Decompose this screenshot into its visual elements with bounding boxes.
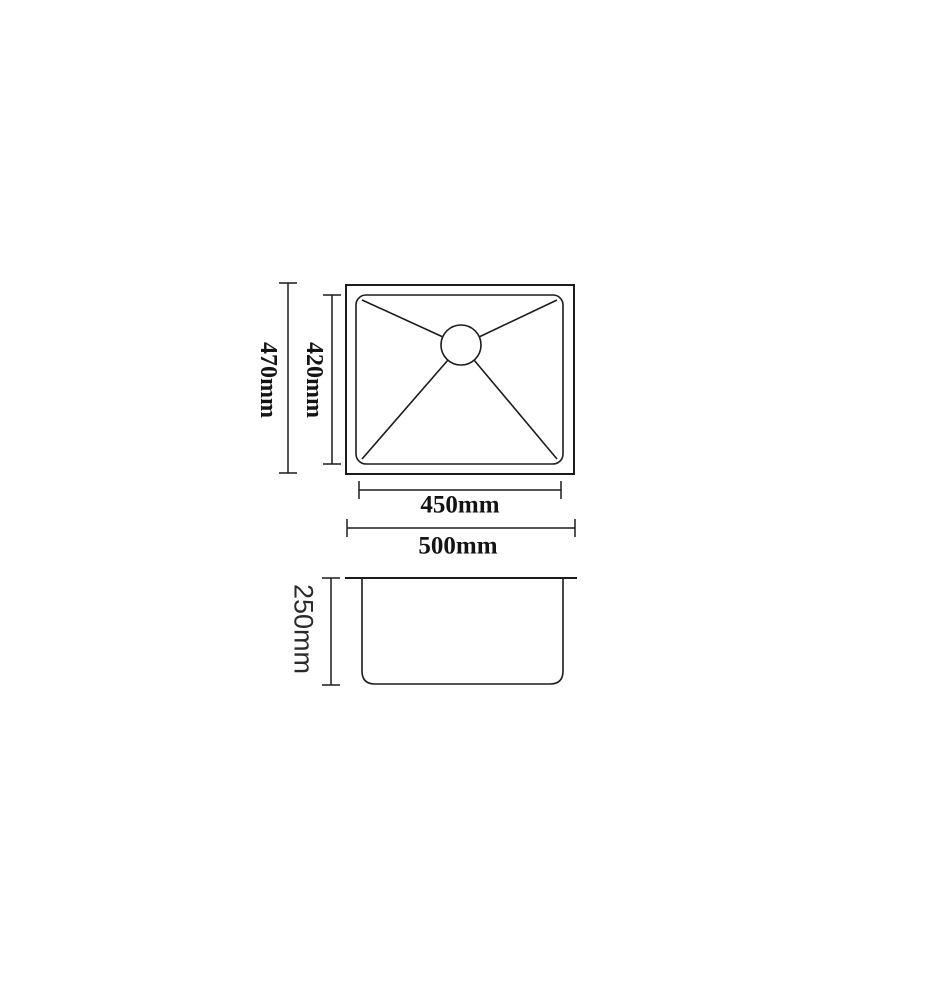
- sink-side-view: [345, 578, 577, 684]
- dim-label-inner-height: 420mm: [302, 342, 326, 418]
- drain-crease-top-right: [479, 300, 557, 337]
- drain-circle: [441, 325, 481, 365]
- dim-label-outer-height: 470mm: [256, 342, 280, 418]
- outer-rim-outline: [346, 285, 574, 474]
- dim-label-bowl-depth: 250mm: [290, 584, 317, 674]
- dim-line-outer-height: [279, 283, 297, 473]
- sink-dimension-diagram: 470mm 420mm 450mm 500mm 250mm: [0, 0, 944, 1000]
- bowl-top-outline: [356, 295, 563, 464]
- drain-crease-bottom-left: [362, 360, 448, 459]
- dim-line-bowl-depth: [322, 578, 340, 685]
- drain-crease-top-left: [362, 300, 443, 337]
- bowl-profile-outline: [362, 578, 563, 684]
- dim-label-inner-width: 450mm: [420, 493, 499, 518]
- dim-label-outer-width: 500mm: [418, 534, 497, 559]
- sink-top-view: [346, 285, 574, 474]
- drain-crease-bottom-right: [474, 360, 557, 459]
